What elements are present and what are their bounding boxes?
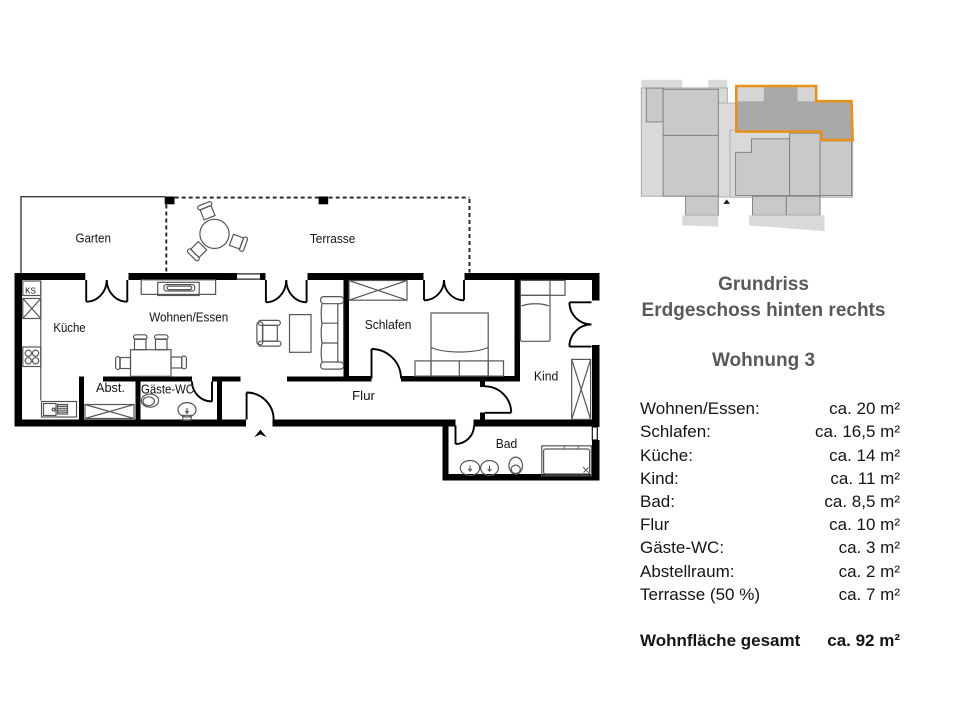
svg-text:KS: KS: [25, 287, 36, 296]
svg-text:Bad: Bad: [496, 437, 518, 451]
svg-text:Kind: Kind: [534, 369, 559, 383]
svg-text:Gäste-WC: Gäste-WC: [141, 382, 194, 396]
svg-text:Küche: Küche: [53, 321, 85, 335]
svg-text:Schlafen: Schlafen: [365, 318, 412, 332]
svg-text:Terrasse: Terrasse: [310, 232, 356, 246]
svg-text:Wohnen/Essen: Wohnen/Essen: [149, 310, 228, 324]
svg-text:Garten: Garten: [75, 231, 111, 245]
svg-text:Abst.: Abst.: [96, 381, 125, 395]
svg-text:Flur: Flur: [352, 389, 375, 403]
